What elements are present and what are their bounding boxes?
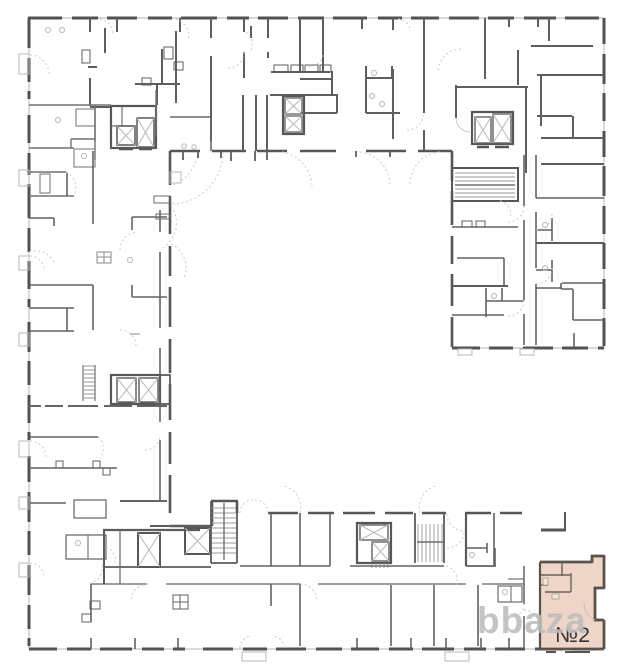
svg-text:bbaza: bbaza <box>477 600 587 641</box>
